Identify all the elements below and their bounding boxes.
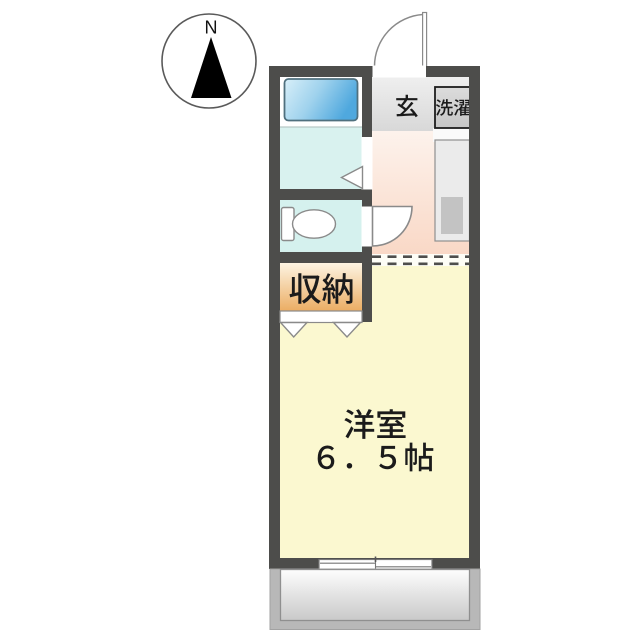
svg-text:N: N bbox=[205, 18, 218, 38]
